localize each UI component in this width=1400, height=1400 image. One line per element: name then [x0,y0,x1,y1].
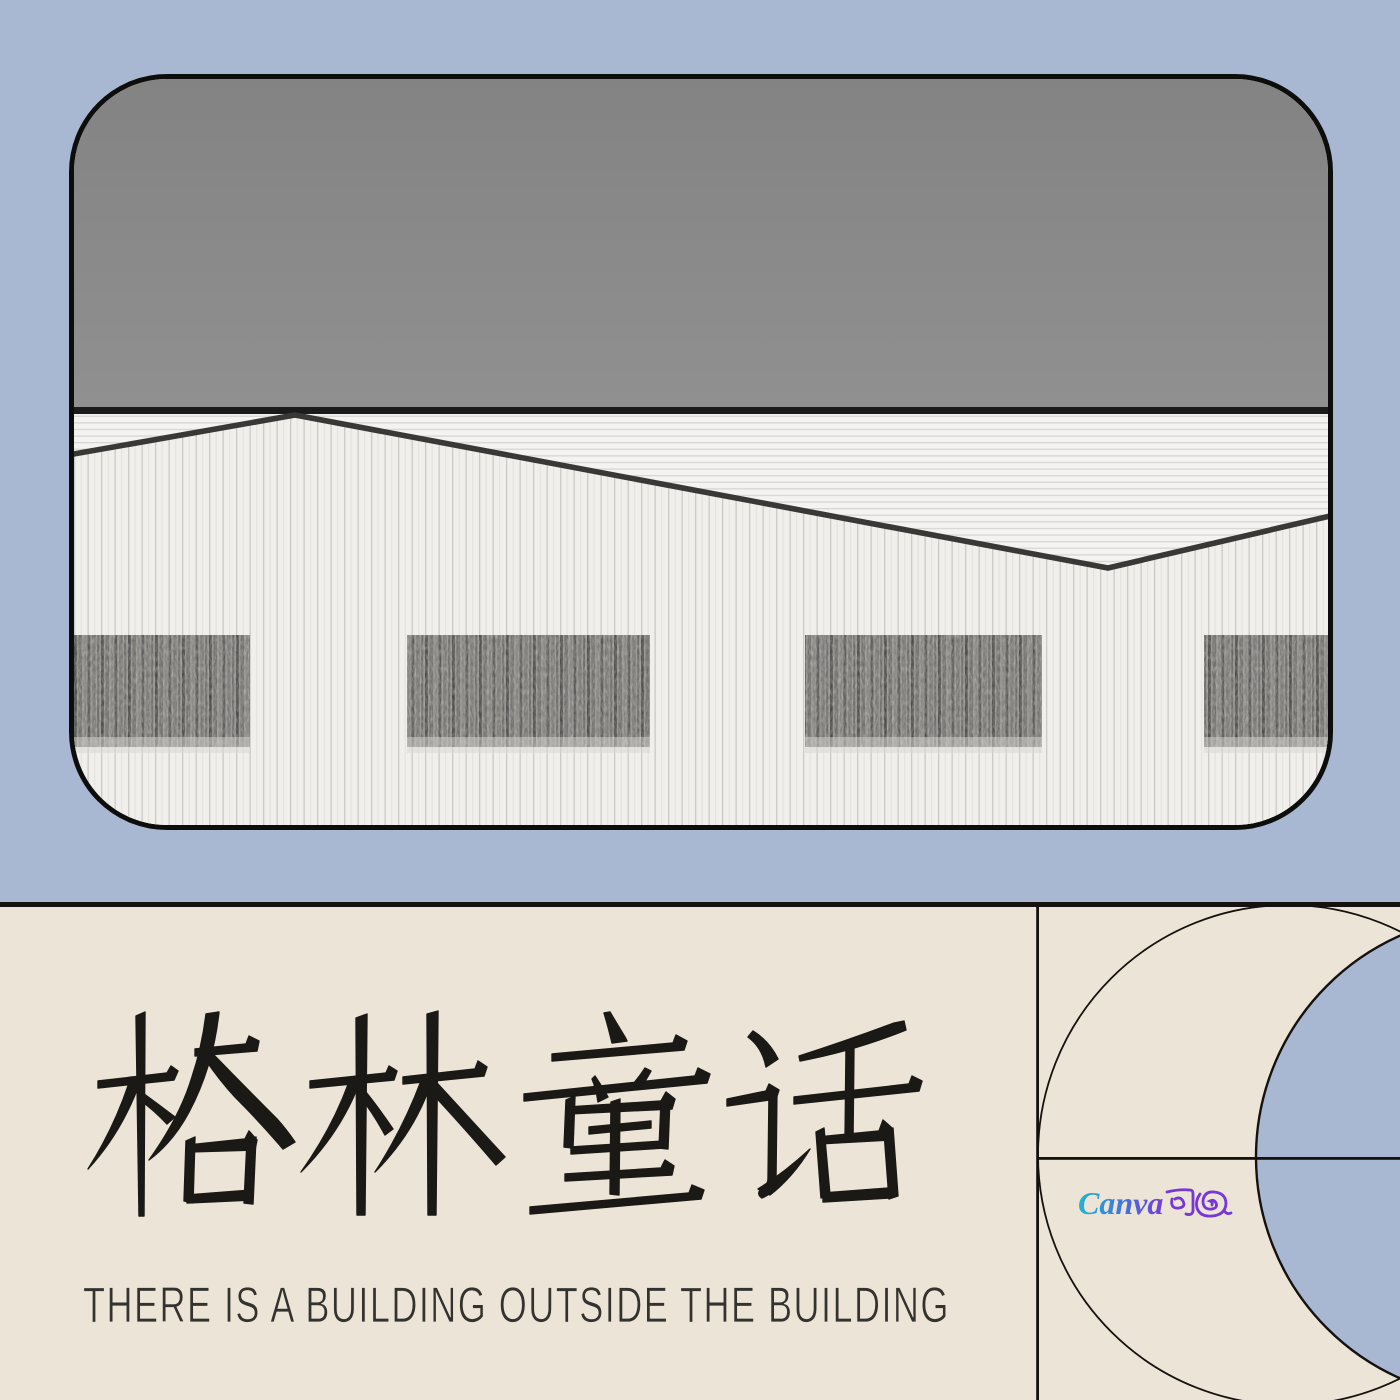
svg-text:Canva: Canva [1078,1185,1163,1221]
